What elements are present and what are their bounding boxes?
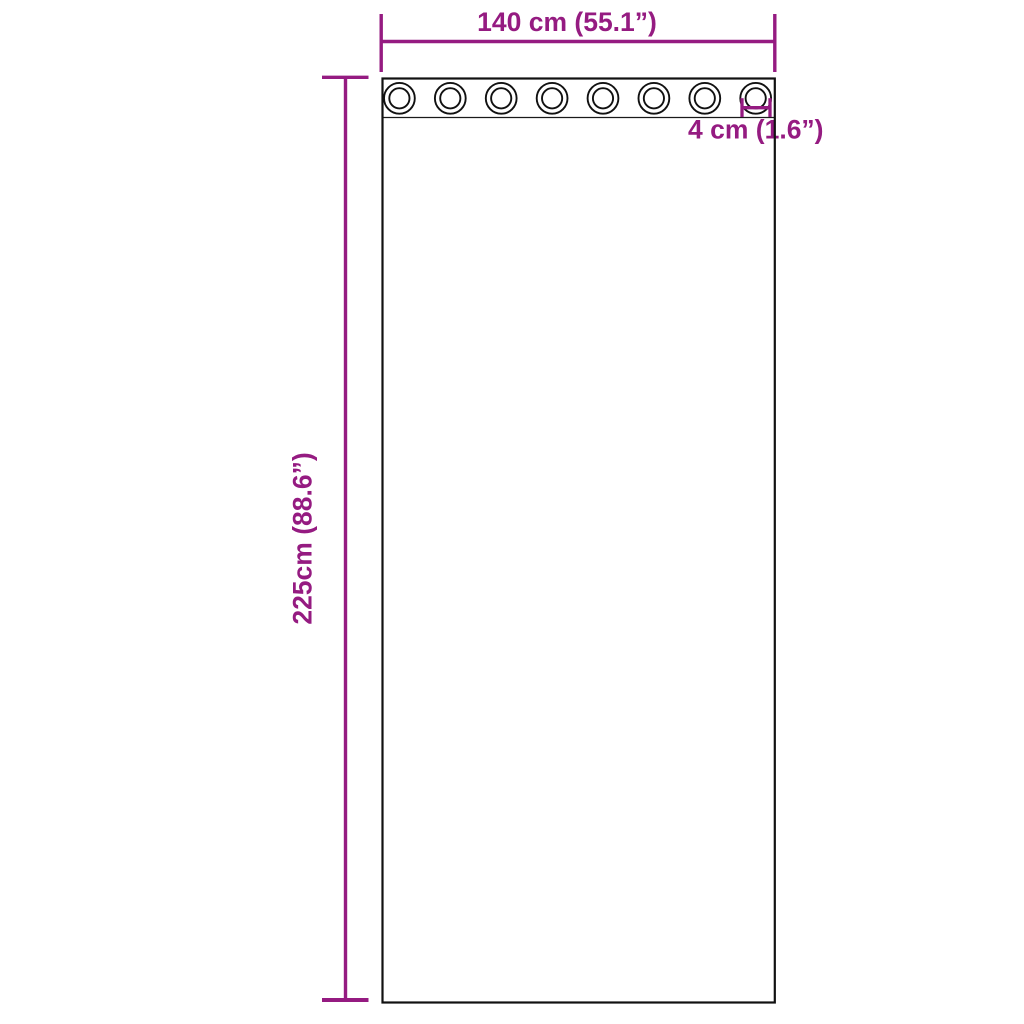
svg-text:140 cm (55.1”): 140 cm (55.1”)	[477, 7, 657, 37]
svg-text:225cm (88.6”): 225cm (88.6”)	[287, 452, 317, 624]
svg-text:4 cm (1.6”): 4 cm (1.6”)	[688, 115, 824, 145]
